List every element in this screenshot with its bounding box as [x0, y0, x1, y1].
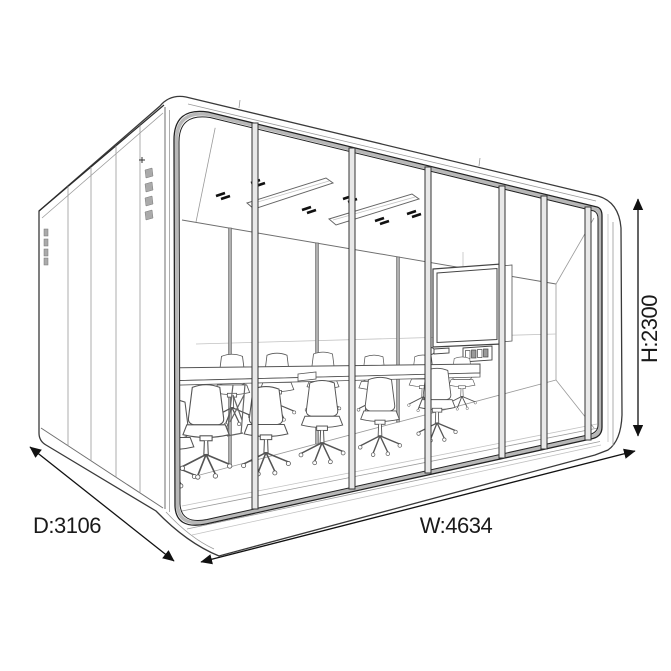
mullion	[349, 148, 355, 489]
mullion	[541, 196, 547, 449]
mullion	[499, 186, 505, 458]
mullion	[585, 207, 591, 440]
pod-diagram-svg: D:3106 W:4634 H:2300	[0, 0, 671, 671]
table-cable-box	[298, 372, 316, 381]
pod-shell-silhouette	[39, 96, 622, 556]
depth-label: D:3106	[33, 513, 101, 538]
dimension-height: H:2300	[637, 199, 662, 436]
height-label: H:2300	[637, 295, 662, 363]
width-label: W:4634	[420, 513, 493, 538]
roof-seam-tick-1	[239, 100, 240, 108]
mullion	[425, 167, 431, 473]
roof-seam-tick-2	[479, 158, 480, 166]
pod-dimension-diagram: D:3106 W:4634 H:2300	[0, 0, 671, 671]
mullion	[252, 123, 258, 509]
